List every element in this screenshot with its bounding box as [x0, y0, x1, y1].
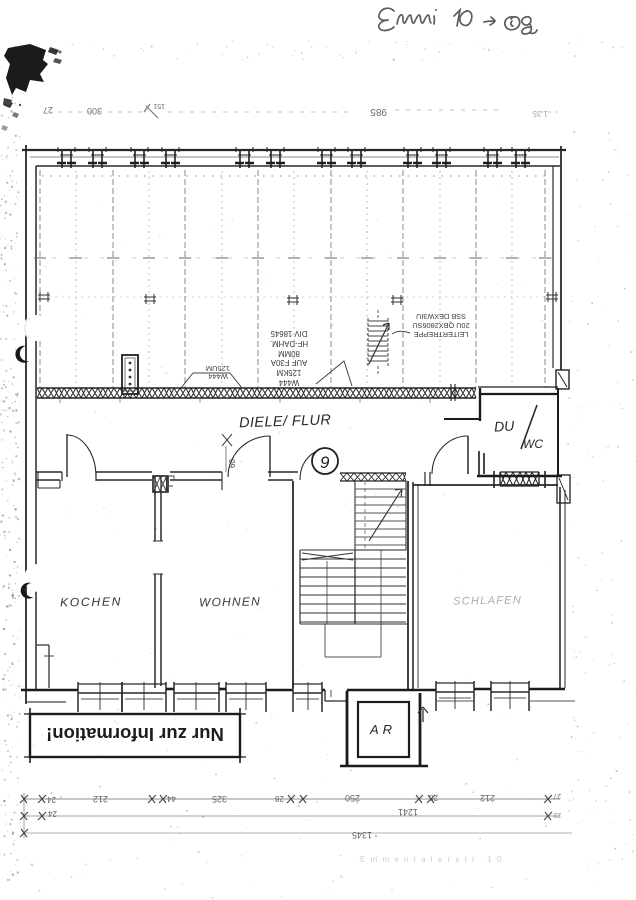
svg-text:27: 27 [553, 792, 561, 799]
svg-text:SSB DEXW3IU: SSB DEXW3IU [416, 312, 466, 321]
svg-text:HF-DAHM.: HF-DAHM. [270, 339, 308, 348]
svg-text:SCHLAFEN: SCHLAFEN [453, 594, 522, 607]
svg-text:LEITERTREPPE: LEITERTREPPE [414, 330, 469, 339]
svg-text:W444: W444 [278, 378, 299, 387]
svg-text:AUF F30A: AUF F30A [270, 358, 307, 367]
svg-text:DIELE/ FLUR: DIELE/ FLUR [239, 412, 332, 431]
svg-text:1345: 1345 [352, 830, 372, 840]
svg-text:80MM: 80MM [278, 349, 300, 358]
svg-text:151: 151 [153, 102, 165, 109]
svg-text:DIV 18645: DIV 18645 [270, 329, 308, 338]
svg-text:125KM: 125KM [277, 368, 302, 377]
svg-text:44: 44 [167, 794, 176, 803]
svg-text:1.35: 1.35 [532, 109, 548, 118]
svg-text:AR: AR [369, 722, 396, 737]
svg-text:KOCHEN: KOCHEN [60, 594, 122, 609]
svg-text:24: 24 [48, 809, 57, 818]
svg-text:27: 27 [43, 105, 53, 115]
svg-text:E m m e n t a l e r s t r . 1: E m m e n t a l e r s t r . 1 0 [360, 855, 503, 864]
svg-text:1241: 1241 [398, 807, 418, 817]
svg-text:125UM: 125UM [206, 364, 230, 373]
svg-text:24: 24 [47, 795, 56, 804]
svg-text:212: 212 [93, 794, 108, 804]
svg-text:20U QBX2806SU: 20U QBX2806SU [412, 321, 469, 330]
svg-text:300: 300 [87, 106, 102, 116]
svg-text:325: 325 [212, 794, 227, 804]
svg-text:212: 212 [480, 793, 495, 803]
svg-text:WOHNEN: WOHNEN [199, 594, 261, 609]
svg-text:22: 22 [553, 811, 561, 818]
svg-text:i.: i. [12, 591, 17, 601]
svg-text:60: 60 [228, 459, 237, 468]
svg-text:28: 28 [429, 793, 438, 802]
svg-text:9: 9 [320, 453, 330, 472]
svg-text:WC: WC [523, 437, 543, 451]
svg-text:DU: DU [494, 417, 516, 434]
svg-text:250: 250 [345, 793, 360, 803]
svg-text:Nur zur Information!: Nur zur Information! [46, 724, 224, 745]
svg-text:985: 985 [370, 106, 387, 117]
svg-text:28: 28 [275, 794, 284, 803]
